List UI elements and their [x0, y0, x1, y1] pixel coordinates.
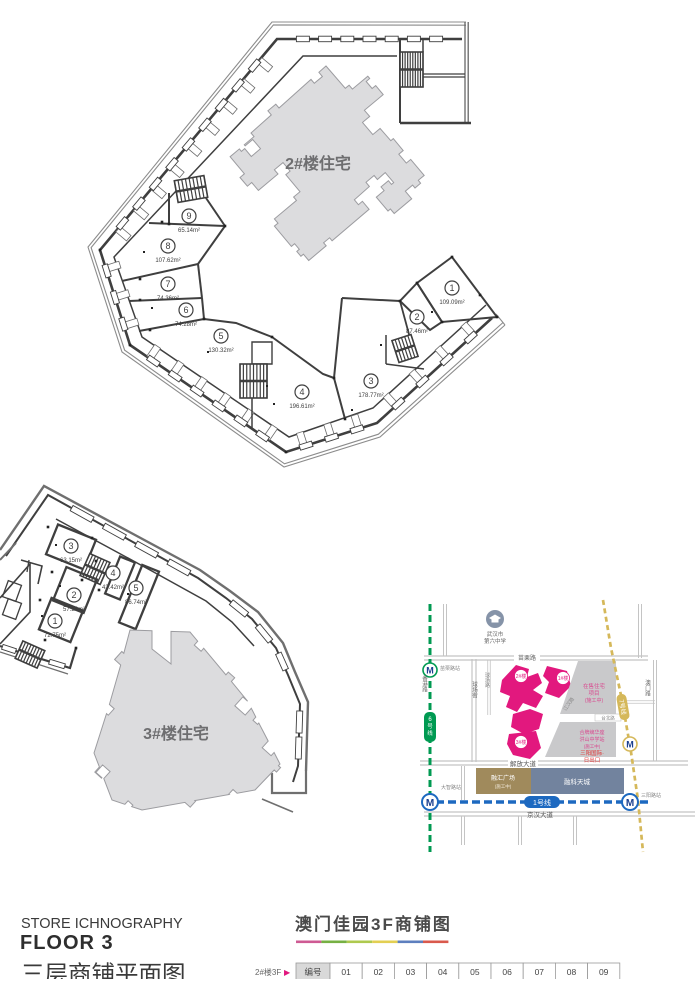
svg-text:号: 号: [427, 723, 433, 730]
svg-text:107.62m²: 107.62m²: [155, 258, 180, 264]
svg-text:2#楼: 2#楼: [516, 673, 527, 680]
svg-text:65.14m²: 65.14m²: [178, 228, 200, 234]
svg-text:43.42m²: 43.42m²: [102, 585, 124, 591]
svg-text:3: 3: [368, 376, 373, 386]
svg-text:解放大道: 解放大道: [510, 759, 537, 768]
svg-text:01: 01: [341, 967, 351, 977]
svg-text:2#楼住宅: 2#楼住宅: [285, 154, 351, 173]
svg-text:4: 4: [299, 387, 304, 397]
svg-text:(施工中): (施工中): [495, 783, 512, 790]
svg-text:3: 3: [68, 541, 73, 551]
svg-text:86.74m²: 86.74m²: [125, 600, 147, 606]
svg-text:M: M: [426, 798, 434, 809]
svg-text:▶: ▶: [284, 968, 291, 977]
svg-text:1: 1: [52, 616, 57, 626]
svg-text:融汇广场: 融汇广场: [491, 774, 515, 782]
svg-text:1: 1: [449, 283, 454, 293]
svg-text:编号: 编号: [304, 967, 321, 977]
svg-text:苗栗路站: 苗栗路站: [440, 665, 460, 672]
svg-text:06: 06: [502, 967, 512, 977]
svg-text:香港路: 香港路: [421, 675, 428, 694]
svg-text:178.77m²: 178.77m²: [358, 393, 383, 399]
svg-text:87.46m²: 87.46m²: [406, 329, 428, 335]
svg-text:三阳路站: 三阳路站: [641, 792, 661, 799]
svg-text:03: 03: [406, 967, 416, 977]
svg-text:02: 02: [374, 967, 384, 977]
svg-text:FLOOR 3: FLOOR 3: [20, 932, 114, 954]
svg-text:3#楼住宅: 3#楼住宅: [143, 724, 209, 743]
svg-text:04: 04: [438, 967, 448, 977]
svg-text:2#楼3F: 2#楼3F: [255, 967, 281, 977]
svg-text:台北路: 台北路: [601, 715, 615, 722]
svg-text:7: 7: [165, 279, 170, 289]
svg-text:5: 5: [218, 331, 223, 341]
svg-text:M: M: [426, 666, 434, 676]
svg-text:洪山中学站: 洪山中学站: [579, 736, 604, 743]
svg-text:STORE ICHNOGRAPHY: STORE ICHNOGRAPHY: [21, 916, 183, 932]
svg-text:三层商铺平面图: 三层商铺平面图: [21, 961, 186, 979]
svg-text:09: 09: [599, 967, 609, 977]
svg-text:9: 9: [186, 211, 191, 221]
svg-text:57.26m²: 57.26m²: [63, 607, 85, 613]
svg-text:球场街: 球场街: [471, 681, 478, 700]
svg-text:74.36m²: 74.36m²: [157, 296, 179, 302]
svg-text:在售住宅: 在售住宅: [583, 682, 606, 690]
svg-text:澳门佳园3F商铺图: 澳门佳园3F商铺图: [295, 914, 452, 934]
svg-text:第六中学: 第六中学: [484, 637, 507, 645]
svg-text:融科天城: 融科天城: [564, 777, 591, 786]
svg-text:苗栗路: 苗栗路: [518, 654, 536, 662]
svg-text:2: 2: [71, 590, 76, 600]
svg-text:武汉市: 武汉市: [487, 630, 504, 638]
svg-text:项目: 项目: [588, 690, 599, 697]
svg-text:日出口: 日出口: [584, 756, 601, 764]
svg-text:线: 线: [427, 729, 433, 737]
svg-text:5: 5: [133, 583, 138, 593]
svg-text:74.28m²: 74.28m²: [175, 322, 197, 328]
svg-text:(施工中): (施工中): [584, 743, 601, 750]
svg-text:2: 2: [414, 312, 419, 322]
svg-text:M: M: [626, 798, 634, 809]
svg-text:130.32m²: 130.32m²: [208, 348, 233, 354]
svg-text:大智路站: 大智路站: [441, 784, 461, 791]
svg-text:08: 08: [567, 967, 577, 977]
svg-text:109.09m²: 109.09m²: [439, 300, 464, 306]
svg-text:72.75m²: 72.75m²: [44, 633, 66, 639]
svg-text:球场路: 球场路: [484, 672, 490, 689]
svg-text:澳门路: 澳门路: [644, 679, 651, 698]
svg-text:63.15m²: 63.15m²: [60, 558, 82, 564]
svg-text:三阳国际·: 三阳国际·: [580, 749, 604, 757]
svg-text:1号线: 1号线: [533, 798, 551, 807]
svg-text:M: M: [626, 740, 634, 750]
svg-text:05: 05: [470, 967, 480, 977]
svg-text:京汉大道: 京汉大道: [527, 810, 554, 819]
svg-text:(施工中): (施工中): [585, 697, 604, 704]
svg-text:3#楼: 3#楼: [516, 739, 527, 746]
svg-text:合牌缡华座: 合牌缡华座: [579, 729, 604, 736]
svg-text:07: 07: [535, 967, 545, 977]
svg-text:1#楼: 1#楼: [558, 675, 569, 682]
svg-text:4: 4: [110, 568, 115, 578]
svg-text:6: 6: [183, 305, 188, 315]
svg-text:8: 8: [165, 241, 170, 251]
svg-text:196.61m²: 196.61m²: [289, 404, 314, 410]
